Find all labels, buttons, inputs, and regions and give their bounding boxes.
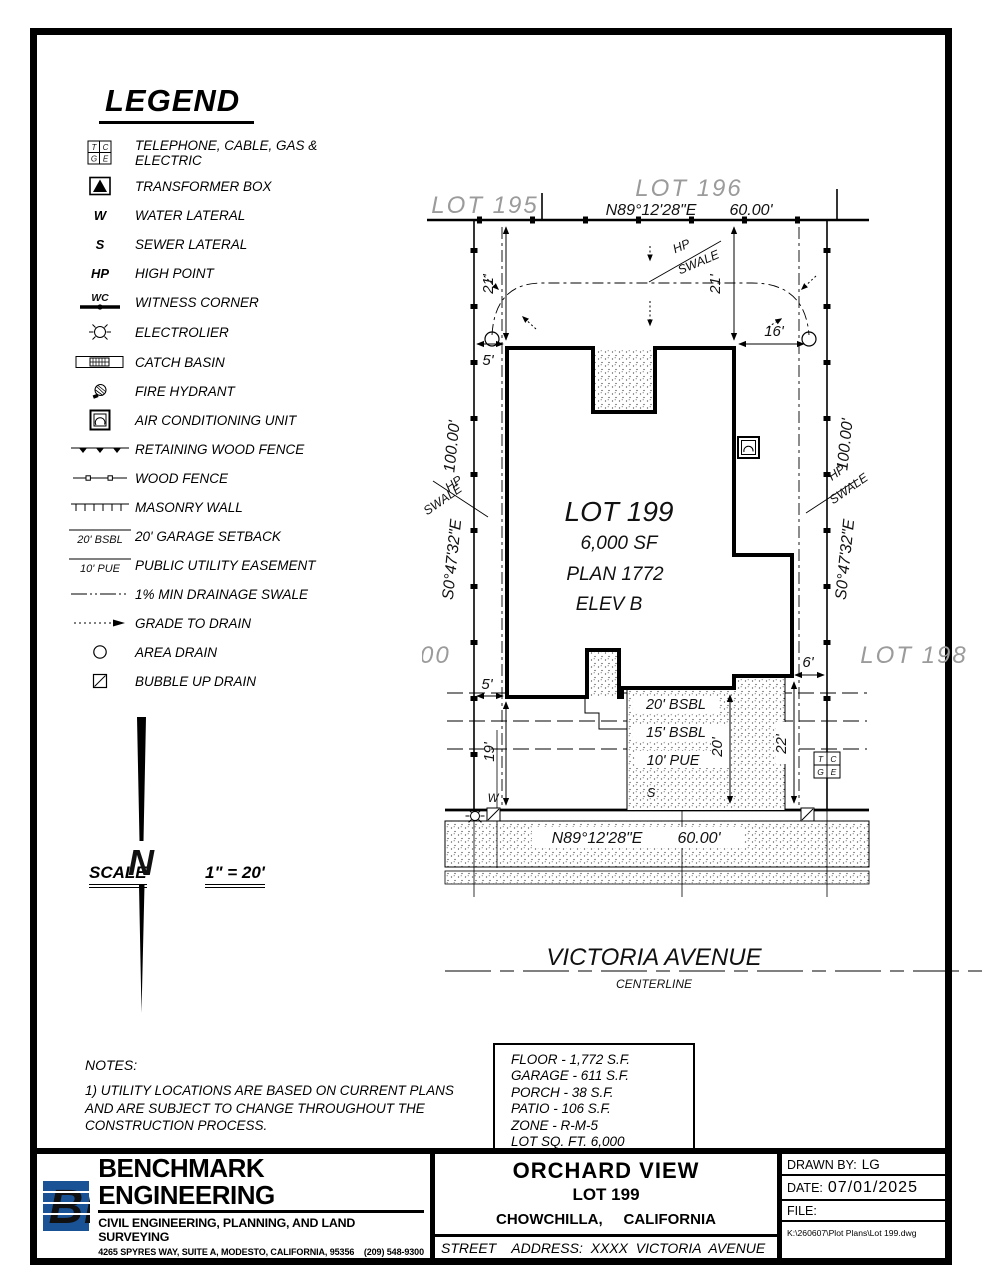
street-address: STREET ADDRESS: XXXX VICTORIA AVENUE xyxy=(435,1234,777,1258)
lot-196-label: LOT 196 xyxy=(635,175,742,202)
svg-text:C: C xyxy=(103,143,109,152)
top-distance: 60.00' xyxy=(729,202,773,219)
svg-text:E: E xyxy=(831,767,837,777)
bubble-up-drain-icon xyxy=(65,672,135,690)
legend-label: TELEPHONE, CABLE, GAS & ELECTRIC xyxy=(135,138,325,168)
legend: LEGEND T C G E TELEPHONE, CABLE, GAS & E… xyxy=(65,83,365,699)
centerline-label: CENTERLINE xyxy=(616,977,693,991)
sewer-lateral-label: S xyxy=(647,786,656,800)
company-address: 4265 SPYRES WAY, SUITE A, MODESTO, CALIF… xyxy=(98,1247,424,1257)
stat-garage: GARAGE - 611 S.F. xyxy=(511,1068,693,1084)
legend-label: 20' GARAGE SETBACK xyxy=(135,529,325,544)
legend-label: RETAINING WOOD FENCE xyxy=(135,442,325,457)
svg-text:T: T xyxy=(818,754,824,764)
legend-label: AREA DRAIN xyxy=(135,645,325,660)
stat-patio: PATIO - 106 S.F. xyxy=(511,1101,693,1117)
sewer-lateral-icon: S xyxy=(65,237,135,252)
pue10-label: 10' PUE xyxy=(647,753,700,769)
legend-label: FIRE HYDRANT xyxy=(135,384,325,399)
drainage-swale-icon xyxy=(65,590,135,598)
legend-rows: T C G E TELEPHONE, CABLE, GAS & ELECTRIC… xyxy=(65,138,365,692)
legend-item: 10' PUE PUBLIC UTILITY EASEMENT xyxy=(65,554,365,576)
lot-plan: PLAN 1772 xyxy=(566,564,664,585)
drawn-by-label: DRAWN BY: xyxy=(787,1158,857,1172)
file-row: FILE: xyxy=(782,1201,945,1222)
legend-label: SEWER LATERAL xyxy=(135,237,325,252)
legend-label: WOOD FENCE xyxy=(135,471,325,486)
date-label: DATE: xyxy=(787,1181,823,1195)
legend-item: S SEWER LATERAL xyxy=(65,233,365,255)
tcge-box-icon: T C G E xyxy=(65,140,135,166)
fire-hydrant-icon xyxy=(65,382,135,400)
file-label: FILE: xyxy=(787,1204,817,1218)
project-lot: LOT 199 xyxy=(435,1185,777,1205)
title-block: B E BENCHMARK ENGINEERING CIVIL ENGINEER… xyxy=(37,1148,945,1258)
svg-text:T: T xyxy=(92,143,98,152)
legend-label: BUBBLE UP DRAIN xyxy=(135,674,325,689)
high-point-icon: HP xyxy=(65,266,135,281)
company-tagline: CIVIL ENGINEERING, PLANNING, AND LAND SU… xyxy=(98,1216,424,1244)
swale-label: SWALE xyxy=(422,481,465,518)
legend-item: WOOD FENCE xyxy=(65,467,365,489)
lot-195-label: LOT 195 xyxy=(431,192,538,219)
dim-5-bottom: 5' xyxy=(481,676,493,693)
hp-label: HP xyxy=(671,236,693,256)
ac-unit xyxy=(738,437,759,458)
legend-item: W WATER LATERAL xyxy=(65,204,365,226)
porch-hatch xyxy=(589,652,617,696)
right-bearing: S0°47'32"E xyxy=(833,518,858,601)
lot-number: LOT 199 xyxy=(565,496,674,527)
street-right-of-way: N89°12'28"E 60.00' xyxy=(445,810,869,897)
bsbl20-label: 20' BSBL xyxy=(645,697,706,713)
dim-16: 16' xyxy=(764,323,785,340)
legend-label: TRANSFORMER BOX xyxy=(135,179,325,194)
svg-text:E: E xyxy=(84,1181,90,1234)
transformer-right xyxy=(801,808,814,821)
dim-22: 22' xyxy=(773,733,790,755)
project-city: CHOWCHILLA, CALIFORNIA xyxy=(435,1211,777,1228)
bsbl15-label: 15' BSBL xyxy=(646,725,706,741)
date-value: 07/01/2025 xyxy=(828,1179,918,1197)
legend-item: WC WITNESS CORNER xyxy=(65,291,365,313)
legend-item: MASONRY WALL xyxy=(65,496,365,518)
transformer-box-icon xyxy=(65,176,135,196)
svg-text:B: B xyxy=(49,1181,84,1234)
svg-text:E: E xyxy=(103,155,109,164)
legend-item: ELECTROLIER xyxy=(65,320,365,344)
north-arrow: N xyxy=(123,713,163,1023)
legend-label: ELECTROLIER xyxy=(135,325,325,340)
stat-floor: FLOOR - 1,772 S.F. xyxy=(511,1052,693,1068)
stat-zone: ZONE - R-M-5 xyxy=(511,1118,693,1134)
area-drain-icon xyxy=(65,643,135,661)
north-letter: N xyxy=(128,842,155,883)
water-lateral-label: W xyxy=(488,793,500,805)
legend-item: RETAINING WOOD FENCE xyxy=(65,438,365,460)
legend-item: HP HIGH POINT xyxy=(65,262,365,284)
dim-21-right: 21' xyxy=(707,273,724,295)
legend-title: LEGEND xyxy=(99,83,254,124)
setback-labels: 20' BSBL 15' BSBL 10' PUE xyxy=(633,696,719,769)
wood-fence-icon xyxy=(65,473,135,483)
witness-corner-icon: WC xyxy=(65,292,135,312)
retaining-wood-fence-icon xyxy=(65,443,135,455)
tcge-plan-box: T C G E xyxy=(814,752,840,778)
notes-title: NOTES: xyxy=(85,1057,463,1073)
top-bearing: N89°12'28"E xyxy=(606,202,697,219)
svg-text:G: G xyxy=(817,767,824,777)
dim-6: 6' xyxy=(802,654,814,671)
title-block-company: B E BENCHMARK ENGINEERING CIVIL ENGINEER… xyxy=(37,1154,435,1258)
electrolier-icon xyxy=(65,320,135,344)
lot-198-label: LOT 198 xyxy=(860,642,967,669)
dim-19: 19' xyxy=(481,741,498,762)
electrolier-symbol xyxy=(466,810,485,823)
legend-label: GRADE TO DRAIN xyxy=(135,616,325,631)
garage-setback-icon: 20' BSBL xyxy=(65,527,135,545)
legend-label: WITNESS CORNER xyxy=(135,295,325,310)
grade-to-drain-icon xyxy=(65,618,135,628)
date-row: DATE: 07/01/2025 xyxy=(782,1176,945,1201)
svg-text:G: G xyxy=(91,155,97,164)
legend-item: FIRE HYDRANT xyxy=(65,380,365,402)
dim-5-top: 5' xyxy=(482,352,494,369)
catch-basin-icon xyxy=(65,354,135,370)
legend-item: 20' BSBL 20' GARAGE SETBACK xyxy=(65,525,365,547)
drawn-by-value: LG xyxy=(862,1157,880,1172)
pue-icon: 10' PUE xyxy=(65,556,135,574)
street-distance: 60.00' xyxy=(677,830,721,847)
left-bearing: S0°47'32"E xyxy=(440,518,465,601)
grade-arrows xyxy=(484,246,816,329)
stat-porch: PORCH - 38 S.F. xyxy=(511,1085,693,1101)
file-path: K:\260607\Plot Plans\Lot 199.dwg xyxy=(782,1222,945,1240)
svg-text:C: C xyxy=(830,754,837,764)
lot-elev: ELEV B xyxy=(576,594,643,615)
legend-label: WATER LATERAL xyxy=(135,208,325,223)
plot-plan-sheet: LEGEND T C G E TELEPHONE, CABLE, GAS & E… xyxy=(0,0,984,1275)
legend-item: T C G E TELEPHONE, CABLE, GAS & ELECTRIC xyxy=(65,138,365,168)
street-bearing: N89°12'28"E xyxy=(552,830,643,847)
dim-20: 20' xyxy=(709,736,726,758)
legend-item: BUBBLE UP DRAIN xyxy=(65,670,365,692)
company-name: BENCHMARK ENGINEERING xyxy=(98,1155,424,1214)
legend-item: 1% MIN DRAINAGE SWALE xyxy=(65,583,365,605)
patio-hatch xyxy=(595,350,653,410)
walkway-steps xyxy=(585,697,627,729)
svg-text:WC: WC xyxy=(91,292,109,304)
lot-200-label: LOT 200 xyxy=(422,642,451,669)
legend-label: AIR CONDITIONING UNIT xyxy=(135,413,325,428)
legend-label: CATCH BASIN xyxy=(135,355,325,370)
scale-value: 1" = 20' xyxy=(205,863,265,888)
street-name: VICTORIA AVENUE xyxy=(546,944,762,971)
legend-item: GRADE TO DRAIN xyxy=(65,612,365,634)
site-plan-drawing: N89°12'28"E 60.00' 20' BSBL 15' BSBL xyxy=(422,175,984,1020)
legend-item: CATCH BASIN xyxy=(65,351,365,373)
title-block-project: ORCHARD VIEW LOT 199 CHOWCHILLA, CALIFOR… xyxy=(435,1154,782,1258)
project-name: ORCHARD VIEW xyxy=(435,1158,777,1184)
note-1: 1) UTILITY LOCATIONS ARE BASED ON CURREN… xyxy=(85,1082,463,1135)
legend-item: AIR CONDITIONING UNIT xyxy=(65,409,365,431)
street-label: VICTORIA AVENUE CENTERLINE xyxy=(445,944,984,991)
legend-label: PUBLIC UTILITY EASEMENT xyxy=(135,558,325,573)
legend-label: 1% MIN DRAINAGE SWALE xyxy=(135,587,325,602)
benchmark-logo-icon: B E xyxy=(43,1175,90,1237)
legend-label: HIGH POINT xyxy=(135,266,325,281)
sheet-border: LEGEND T C G E TELEPHONE, CABLE, GAS & E… xyxy=(30,28,952,1265)
title-block-meta: DRAWN BY: LG DATE: 07/01/2025 FILE: K:\2… xyxy=(782,1154,945,1258)
svg-text:10' PUE: 10' PUE xyxy=(80,563,121,574)
water-lateral-icon: W xyxy=(65,208,135,223)
lot-area: 6,000 SF xyxy=(580,533,658,554)
svg-text:20' BSBL: 20' BSBL xyxy=(76,534,123,545)
left-distance: 100.00' xyxy=(441,419,463,473)
dim-21-left: 21' xyxy=(480,273,497,295)
masonry-wall-icon xyxy=(65,501,135,513)
transformer-left xyxy=(487,808,500,821)
drawn-by-row: DRAWN BY: LG xyxy=(782,1154,945,1176)
legend-item: TRANSFORMER BOX xyxy=(65,175,365,197)
legend-label: MASONRY WALL xyxy=(135,500,325,515)
ac-unit-icon xyxy=(65,409,135,431)
legend-item: AREA DRAIN xyxy=(65,641,365,663)
